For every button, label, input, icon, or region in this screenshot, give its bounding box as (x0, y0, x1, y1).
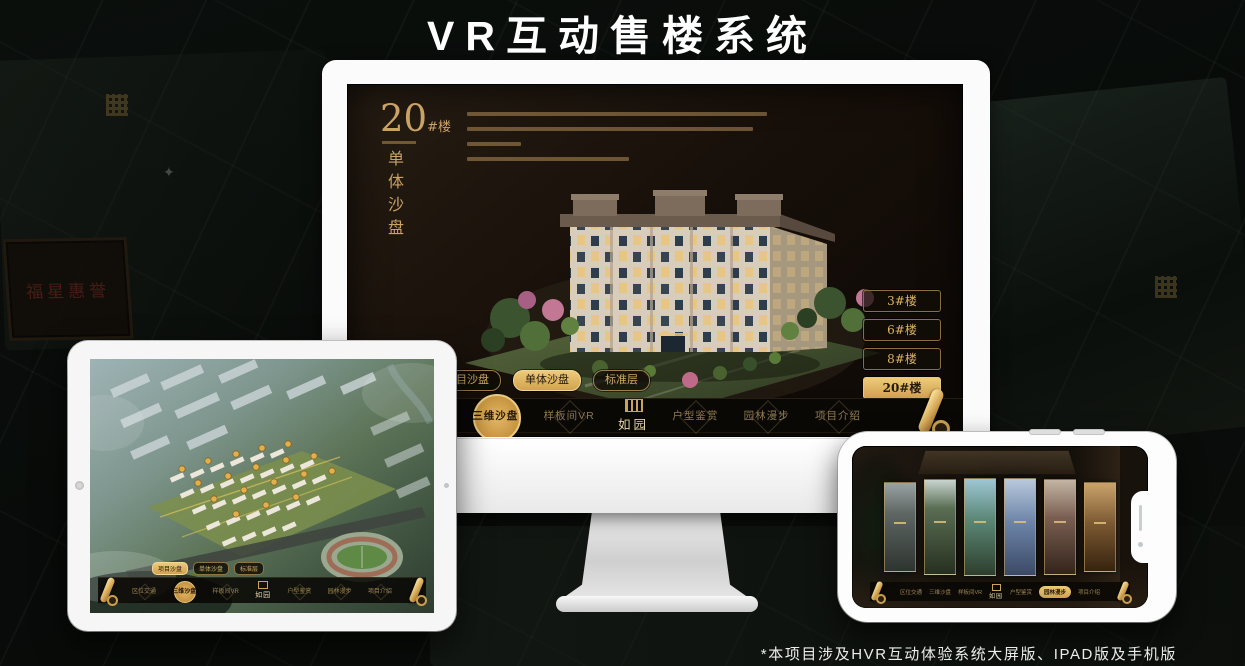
brand-logo: 如园 (618, 399, 649, 433)
brand-seal-icon (258, 581, 268, 589)
page-title: VR互动售楼系统 (0, 2, 1245, 62)
brand-logo: 如园 (989, 584, 1003, 600)
floor-button-3[interactable]: 3#楼 (863, 290, 941, 312)
gallery-panel-label (1014, 521, 1026, 523)
phone-volume-button[interactable] (1074, 430, 1104, 434)
phone-camera-icon (1138, 542, 1143, 547)
nav-item-vr-showroom[interactable]: 样板间VR (542, 404, 597, 427)
nav-item-3d-sandbox[interactable]: 三维沙盘 (470, 404, 520, 427)
nav-item-project-intro[interactable]: 项目介绍 (813, 404, 863, 427)
plaque-text: 福星惠誉 (25, 276, 111, 302)
monitor-base (556, 596, 758, 612)
brand-seal-icon (625, 399, 643, 412)
scroll-icon[interactable] (104, 577, 111, 603)
brand-logo-text: 如园 (989, 591, 1003, 600)
gallery-panel[interactable] (964, 478, 996, 576)
phone-nav-floorplan[interactable]: 户型鉴赏 (1010, 588, 1032, 596)
phone-notch (1131, 491, 1150, 563)
sandbox-tabs: 项目沙盘 单体沙盘 标准层 (433, 370, 650, 391)
phone-nav-garden-walk[interactable]: 园林漫步 (1039, 586, 1071, 598)
phone-screen: 区位交通 三维沙盘 样板间VR 如园 户型鉴赏 园林漫步 项目介绍 (852, 446, 1148, 608)
gallery-panel-label (974, 521, 986, 523)
phone-nav-location-traffic[interactable]: 区位交通 (900, 588, 922, 596)
phone-volume-button[interactable] (1030, 430, 1060, 434)
brand-logo: 如园 (255, 581, 271, 600)
garden-gallery (884, 478, 1116, 576)
tablet-device: 项目沙盘 单体沙盘 标准层 区位交通 三维沙盘 样板间VR 如园 户型鉴赏 园林… (68, 341, 456, 631)
floor-button-6[interactable]: 6#楼 (863, 319, 941, 341)
block-number: 20 (380, 97, 427, 140)
phone-nav-project-intro[interactable]: 项目介绍 (1078, 588, 1100, 596)
tablet-nav-floorplan[interactable]: 户型鉴赏 (287, 586, 311, 595)
gallery-panel-label (1094, 522, 1106, 524)
nav-item-floorplan[interactable]: 户型鉴赏 (670, 404, 720, 427)
gallery-panel-label (894, 522, 906, 524)
block-number-suffix: #楼 (427, 120, 451, 135)
tablet-nav-3d-sandbox[interactable]: 三维沙盘 (172, 586, 196, 595)
tablet-navbar: 区位交通 三维沙盘 样板间VR 如园 户型鉴赏 园林漫步 项目介绍 (98, 577, 426, 603)
brand-logo-text: 如园 (255, 590, 271, 600)
tablet-nav-vr-showroom[interactable]: 样板间VR (213, 586, 239, 595)
compass-star-icon: ✦ (163, 164, 175, 181)
page: 福星惠誉 ✦ VR互动售楼系统 20#楼 单体沙盘 (0, 0, 1245, 666)
brand-logo-text: 如园 (618, 414, 649, 433)
tablet-nav-project-intro[interactable]: 项目介绍 (368, 586, 392, 595)
gallery-panel[interactable] (1044, 479, 1076, 575)
tablet-camera-icon (75, 481, 84, 490)
tablet-sandbox-tabs: 项目沙盘 单体沙盘 标准层 (152, 562, 264, 575)
footnote-text: *本项目涉及HVR互动体验系统大屏版、IPAD版及手机版 (761, 643, 1177, 664)
qr-square-icon (1155, 276, 1177, 298)
phone-speaker-icon (1139, 505, 1142, 531)
description-text-lines (467, 112, 767, 172)
gallery-panel-label (934, 521, 946, 523)
gallery-panel[interactable] (884, 482, 916, 572)
phone-nav-3d-sandbox[interactable]: 三维沙盘 (929, 588, 951, 596)
tablet-nav-location-traffic[interactable]: 区位交通 (132, 586, 156, 595)
phone-nav-vr-showroom[interactable]: 样板间VR (958, 588, 982, 596)
section-title-vertical: 单体沙盘 (382, 150, 406, 262)
phone-device: 区位交通 三维沙盘 样板间VR 如园 户型鉴赏 园林漫步 项目介绍 (838, 432, 1176, 622)
floor-selector: 3#楼 6#楼 8#楼 20#楼 (863, 290, 941, 399)
qr-square-icon (106, 94, 128, 116)
scroll-icon[interactable] (874, 581, 880, 601)
scroll-icon[interactable] (925, 388, 937, 434)
tab-single-sandbox[interactable]: 单体沙盘 (513, 370, 581, 391)
tablet-nav-garden-walk[interactable]: 园林漫步 (328, 586, 352, 595)
header-decoration-line (382, 141, 416, 144)
gallery-panel-label (1054, 521, 1066, 523)
background-photo-right (957, 77, 1245, 453)
nav-item-garden-walk[interactable]: 园林漫步 (742, 404, 792, 427)
scroll-icon[interactable] (1120, 581, 1126, 601)
gallery-panel[interactable] (924, 479, 956, 575)
tablet-tab-standard-floor[interactable]: 标准层 (234, 562, 264, 575)
background-plaque: 福星惠誉 (2, 237, 133, 341)
tab-standard-floor[interactable]: 标准层 (593, 370, 650, 391)
floor-button-8[interactable]: 8#楼 (863, 348, 941, 370)
brand-seal-icon (992, 584, 1001, 591)
scroll-icon[interactable] (413, 577, 420, 603)
tablet-tab-single-sandbox[interactable]: 单体沙盘 (193, 562, 229, 575)
tablet-tab-project-sandbox[interactable]: 项目沙盘 (152, 562, 188, 575)
scene-gate-beam (918, 451, 1076, 474)
tablet-home-button[interactable] (444, 483, 449, 488)
phone-navbar: 区位交通 三维沙盘 样板间VR 如园 户型鉴赏 园林漫步 项目介绍 (870, 582, 1130, 601)
gallery-panel[interactable] (1084, 482, 1116, 572)
gallery-panel[interactable] (1004, 478, 1036, 576)
tablet-screen: 项目沙盘 单体沙盘 标准层 区位交通 三维沙盘 样板间VR 如园 户型鉴赏 园林… (90, 359, 434, 613)
